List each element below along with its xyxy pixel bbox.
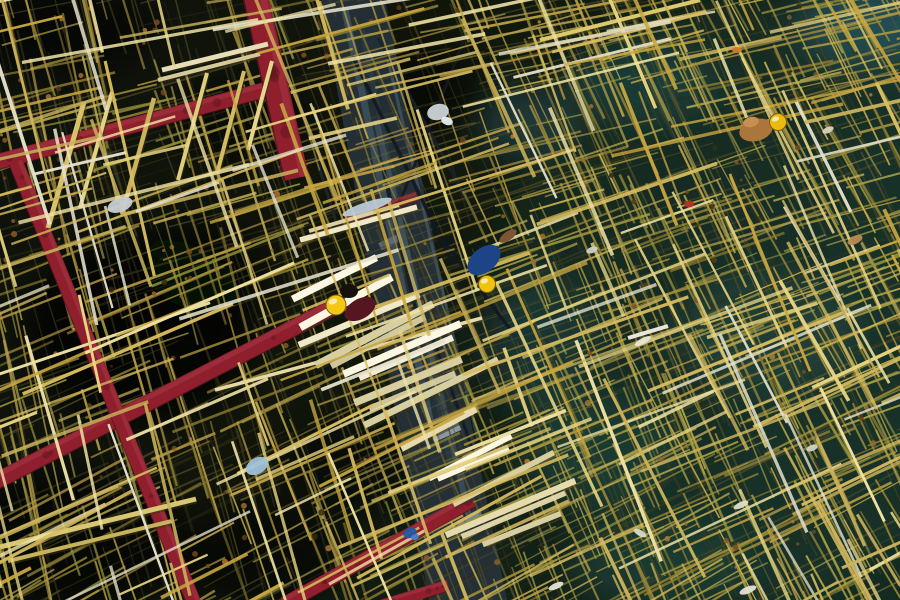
clamp-dot	[423, 242, 426, 245]
clamp-dot	[859, 415, 864, 420]
clamp-dot	[812, 530, 816, 534]
clamp-dot	[228, 313, 233, 318]
clamp-dot	[78, 73, 83, 78]
clamp-dot	[198, 249, 203, 254]
clamp-dot	[585, 400, 591, 406]
clamp-dot	[609, 173, 614, 178]
clamp-dot	[796, 542, 799, 545]
clamp-dot	[631, 199, 636, 204]
beam-rust-spot	[426, 588, 432, 594]
clamp-dot	[110, 365, 113, 368]
clamp-dot	[795, 145, 801, 151]
clamp-dot	[684, 522, 687, 525]
clamp-dot	[813, 72, 819, 78]
beam-rust-spot	[149, 494, 154, 499]
clamp-dot	[110, 268, 113, 271]
clamp-dot	[796, 3, 801, 8]
clamp-dot	[325, 545, 331, 551]
clamp-dot	[192, 551, 198, 557]
clamp-dot	[869, 93, 872, 96]
beam-rust-spot	[20, 175, 25, 180]
clamp-dot	[87, 403, 92, 408]
clamp-dot	[0, 133, 3, 136]
clamp-dot	[739, 178, 742, 181]
clamp-dot	[279, 359, 284, 364]
clamp-dot	[802, 370, 806, 374]
clamp-dot	[631, 303, 637, 309]
clamp-dot	[152, 291, 156, 295]
clamp-dot	[162, 249, 165, 252]
clamp-dot	[283, 343, 289, 349]
clamp-dot	[709, 204, 714, 209]
clamp-dot	[11, 219, 15, 223]
clamp-dot	[351, 107, 354, 110]
clamp-dot	[56, 86, 61, 91]
beam-rust-spot	[213, 98, 222, 107]
clamp-dot	[791, 520, 794, 523]
clamp-dot	[537, 20, 540, 23]
safety-helmet-icon	[326, 295, 346, 315]
clamp-dot	[162, 279, 168, 285]
clamp-dot	[180, 295, 183, 298]
clamp-dot	[185, 277, 188, 280]
clamp-dot	[169, 245, 174, 250]
clamp-dot	[424, 555, 430, 561]
clamp-dot	[712, 257, 718, 263]
clamp-dot	[664, 536, 670, 542]
clamp-dot	[62, 28, 67, 33]
clamp-dot	[271, 249, 274, 252]
clamp-dot	[723, 538, 729, 544]
clamp-dot	[695, 222, 700, 227]
debris-item	[732, 47, 742, 53]
clamp-dot	[318, 509, 324, 515]
clamp-dot	[57, 424, 61, 428]
clamp-dot	[770, 470, 773, 473]
clamp-dot	[870, 440, 876, 446]
clamp-dot	[787, 15, 792, 20]
beam-rust-spot	[436, 586, 440, 590]
clamp-dot	[269, 314, 273, 318]
clamp-dot	[2, 138, 7, 143]
clamp-dot	[206, 564, 210, 568]
clamp-dot	[3, 176, 7, 180]
clamp-dot	[685, 190, 689, 194]
worker-limb	[340, 284, 358, 298]
clamp-dot	[769, 354, 775, 360]
clamp-dot	[312, 533, 318, 539]
debris-item	[684, 201, 694, 208]
aerial-photo-frame: Aerial photo of construction workers wea…	[0, 0, 900, 600]
clamp-dot	[712, 145, 717, 150]
clamp-dot	[161, 89, 167, 95]
clamp-dot	[223, 491, 226, 494]
clamp-dot	[531, 259, 537, 265]
clamp-dot	[364, 458, 367, 461]
scene-photo	[0, 0, 900, 600]
beam-rust-spot	[271, 335, 276, 340]
clamp-dot	[581, 158, 586, 163]
clamp-dot	[408, 142, 413, 147]
safety-helmet-icon	[479, 276, 496, 293]
clamp-dot	[587, 351, 592, 356]
clamp-dot	[772, 379, 776, 383]
clamp-dot	[467, 352, 470, 355]
clamp-dot	[172, 446, 177, 451]
clamp-dot	[589, 104, 593, 108]
clamp-dot	[324, 53, 330, 59]
clamp-dot	[852, 373, 856, 377]
clamp-dot	[11, 231, 17, 237]
clamp-dot	[108, 287, 114, 293]
clamp-dot	[733, 545, 739, 551]
clamp-dot	[460, 137, 466, 143]
clamp-dot	[494, 559, 500, 565]
beam-rust-spot	[48, 450, 53, 455]
clamp-dot	[154, 19, 160, 25]
safety-helmet-icon	[770, 114, 787, 131]
scene-layers	[0, 0, 900, 600]
clamp-dot	[241, 503, 247, 509]
clamp-dot	[301, 53, 306, 58]
clamp-dot	[396, 5, 401, 10]
clamp-dot	[58, 238, 61, 241]
clamp-dot	[735, 160, 739, 164]
clamp-dot	[756, 216, 761, 221]
clamp-dot	[100, 475, 103, 478]
clamp-dot	[242, 535, 247, 540]
clamp-dot	[658, 457, 664, 463]
clamp-dot	[186, 249, 192, 255]
clamp-dot	[188, 276, 192, 280]
clamp-dot	[501, 214, 505, 218]
